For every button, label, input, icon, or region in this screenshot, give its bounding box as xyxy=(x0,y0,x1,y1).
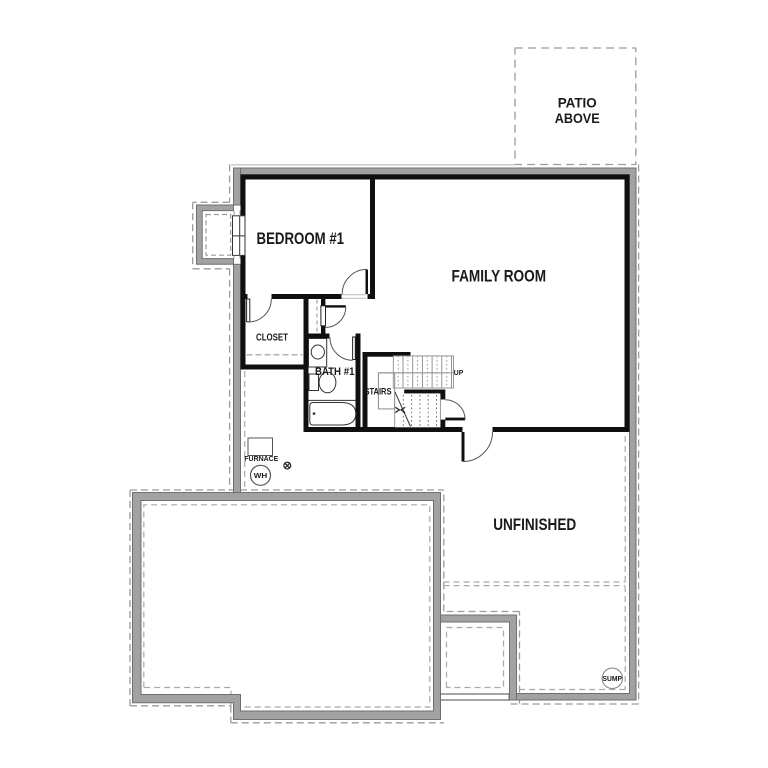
svg-text:FURNACE: FURNACE xyxy=(244,454,278,463)
svg-text:PATIO: PATIO xyxy=(558,95,597,111)
svg-text:WH: WH xyxy=(254,471,268,480)
svg-text:ABOVE: ABOVE xyxy=(555,110,600,126)
svg-text:BATH #1: BATH #1 xyxy=(315,366,355,378)
svg-text:STAIRS: STAIRS xyxy=(365,386,392,397)
svg-text:BEDROOM #1: BEDROOM #1 xyxy=(257,230,345,248)
svg-text:FAMILY ROOM: FAMILY ROOM xyxy=(452,268,547,286)
svg-text:CLOSET: CLOSET xyxy=(256,332,288,344)
svg-text:UP: UP xyxy=(454,370,464,377)
svg-text:SUMP: SUMP xyxy=(603,676,623,683)
svg-text:UNFINISHED: UNFINISHED xyxy=(493,516,576,534)
